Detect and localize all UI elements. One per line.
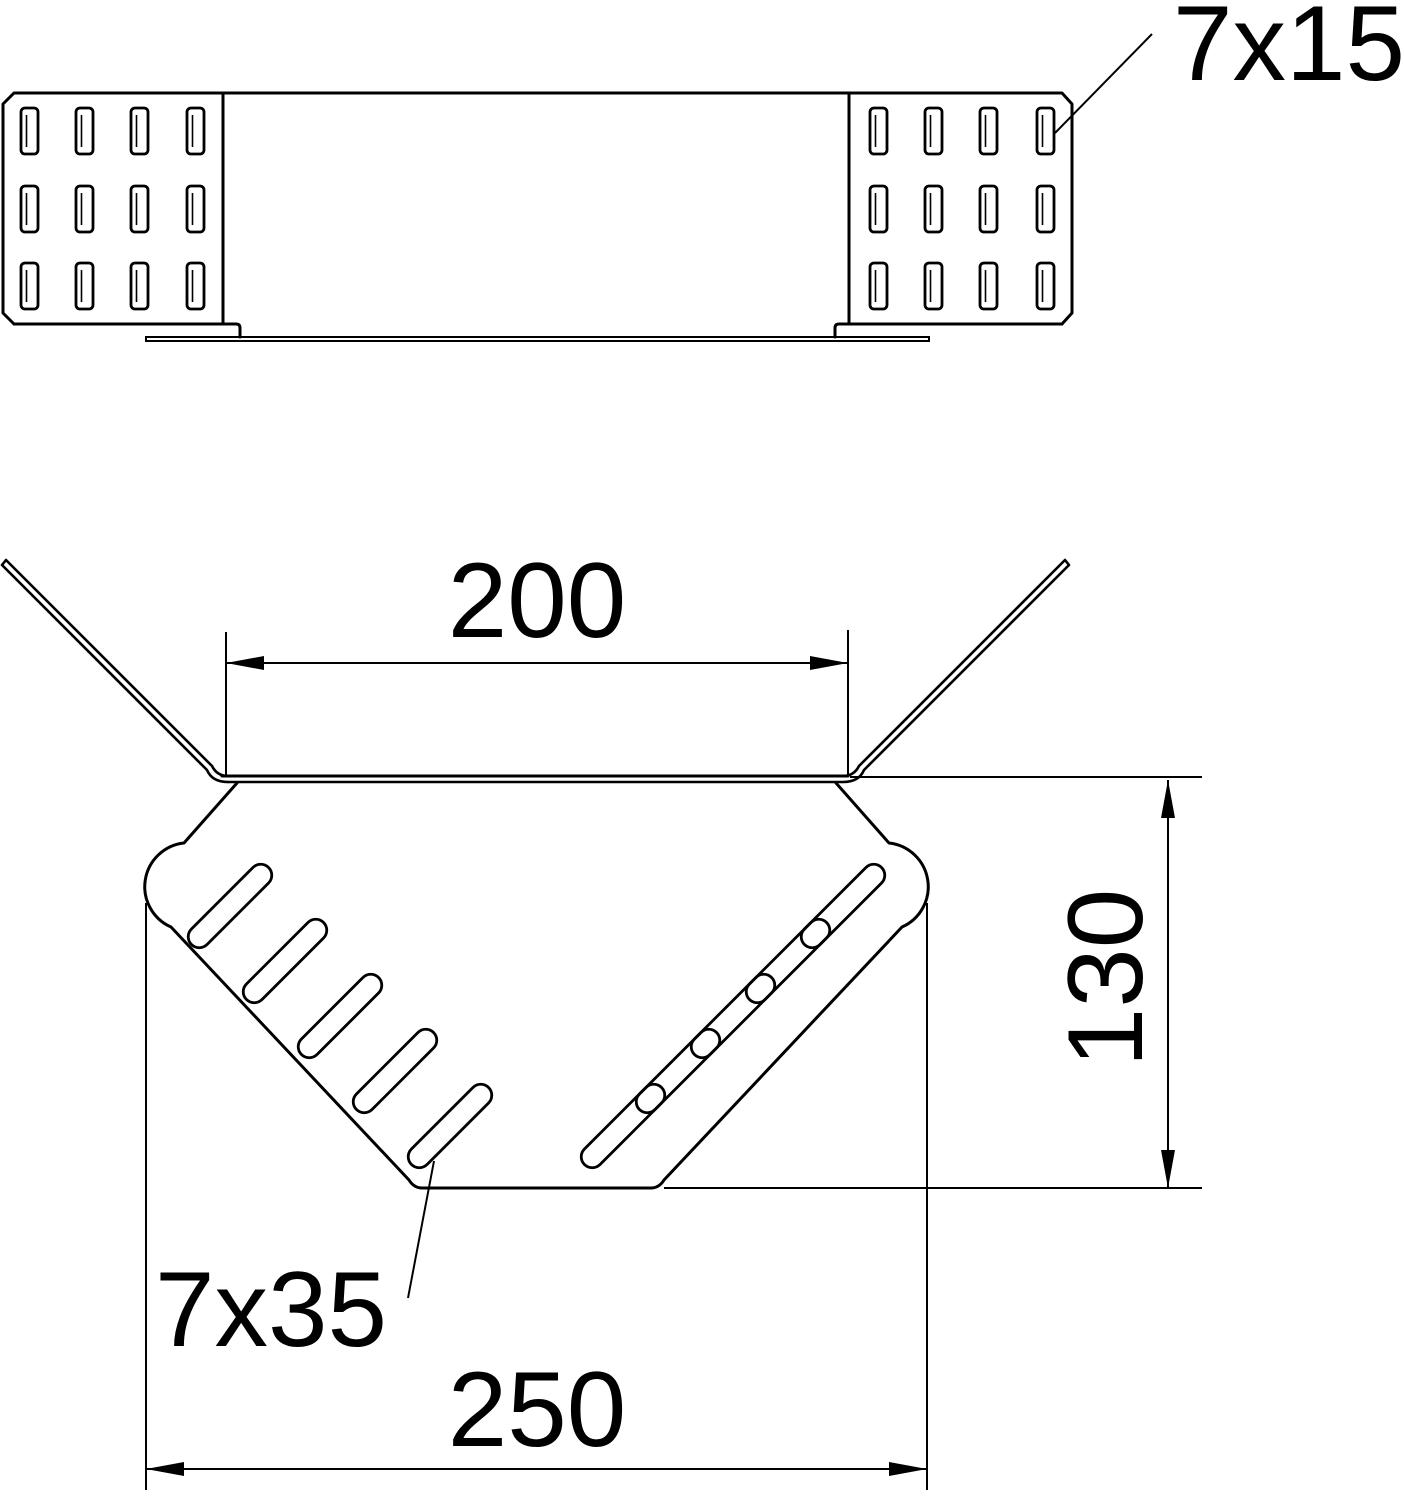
front-slot	[925, 108, 942, 154]
front-left-plate-bottom	[14, 324, 240, 337]
plan-slot	[687, 970, 780, 1063]
front-slot	[870, 108, 887, 154]
front-slot	[1037, 186, 1054, 232]
plan-slot	[404, 1080, 497, 1173]
front-slot	[131, 108, 148, 154]
plan-slot	[797, 860, 890, 953]
plan-view: 200 130 250 7x35	[2, 540, 1202, 1490]
plan-slot	[184, 860, 277, 953]
front-slot	[870, 186, 887, 232]
front-slot	[1037, 108, 1054, 154]
plan-body-outline	[145, 783, 928, 1188]
arrow-right-icon	[889, 1462, 927, 1476]
front-slot	[131, 263, 148, 309]
front-plate-inner-edges	[223, 93, 849, 324]
front-slot	[925, 186, 942, 232]
arrow-up-icon	[1161, 780, 1175, 818]
front-slot	[21, 263, 38, 309]
plan-right-wing	[843, 560, 1069, 782]
front-perforation-slots	[21, 108, 1054, 309]
front-slot	[980, 186, 997, 232]
front-slot	[980, 263, 997, 309]
bottom-width-value: 250	[448, 1349, 627, 1469]
dimension-side-height: 130	[664, 777, 1202, 1188]
front-slot	[21, 108, 38, 154]
front-slot	[1037, 263, 1054, 309]
front-slot	[187, 108, 204, 154]
front-slot	[187, 263, 204, 309]
plan-left-wing	[2, 560, 228, 782]
front-slot	[76, 263, 93, 309]
front-slot	[76, 108, 93, 154]
front-slot	[870, 263, 887, 309]
arrow-left-icon	[146, 1462, 184, 1476]
front-right-plate-bottom	[835, 324, 1062, 337]
front-slot	[925, 263, 942, 309]
plan-slot	[349, 1025, 442, 1118]
plan-slot-label: 7x35	[155, 1249, 387, 1369]
front-slot	[76, 186, 93, 232]
front-slot	[187, 186, 204, 232]
plan-slot	[632, 1025, 725, 1118]
front-perforation-label: 7x15	[1173, 0, 1404, 103]
dimension-bottom-width: 250	[146, 903, 927, 1490]
arrow-down-icon	[1161, 1150, 1175, 1188]
dimension-top-width: 200	[226, 540, 848, 776]
front-slot	[980, 108, 997, 154]
front-leader-line	[1055, 34, 1152, 133]
front-body-outline	[3, 93, 1072, 324]
plan-slot	[577, 1080, 670, 1173]
front-bottom-flange	[146, 337, 929, 341]
front-view: 7x15	[3, 0, 1404, 341]
plan-slot	[294, 970, 387, 1063]
plan-slot	[239, 915, 332, 1008]
arrow-left-icon	[226, 656, 264, 670]
top-width-value: 200	[448, 540, 627, 660]
side-height-value: 130	[1045, 889, 1165, 1068]
front-slot	[131, 186, 148, 232]
plan-slot	[742, 915, 835, 1008]
arrow-right-icon	[810, 656, 848, 670]
front-slot	[21, 186, 38, 232]
plan-diagonal-slots	[184, 860, 890, 1173]
technical-drawing: 7x15 200 130	[0, 0, 1404, 1500]
